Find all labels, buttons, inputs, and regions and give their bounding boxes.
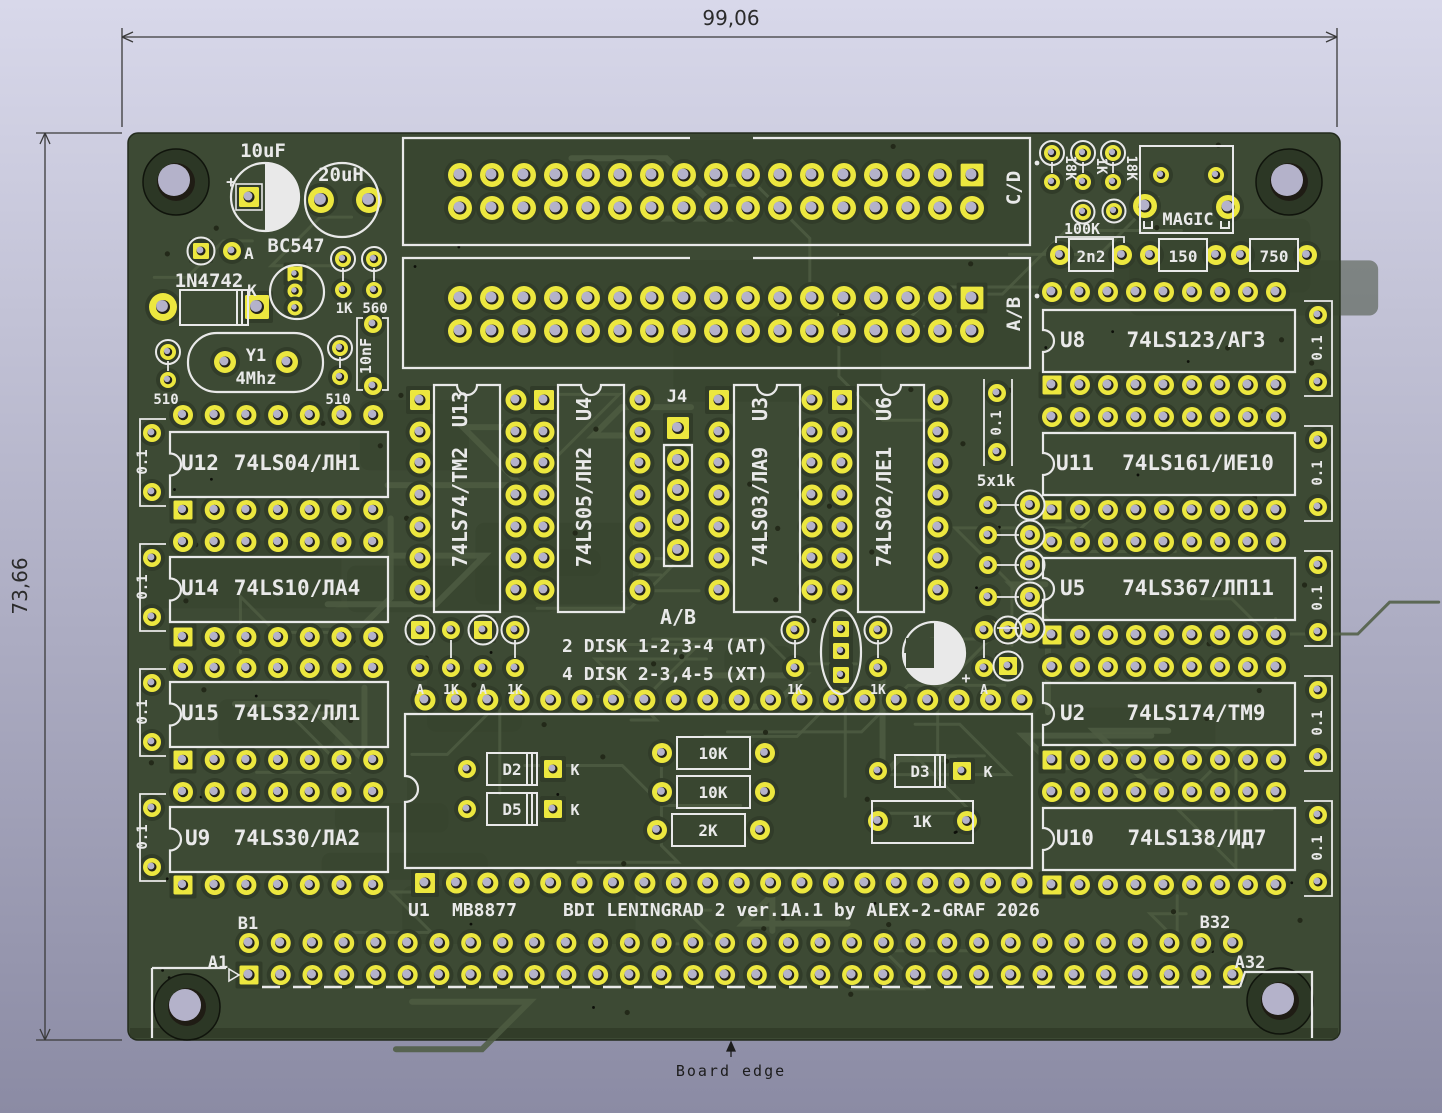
pad-hole — [511, 553, 520, 562]
pad-hole — [156, 300, 168, 312]
pad-hole — [463, 805, 470, 812]
pad-hole — [720, 938, 729, 947]
label-a-j1: A — [416, 683, 424, 698]
pad-hole — [774, 202, 785, 213]
pad-hole — [1215, 287, 1224, 296]
pad-hole — [241, 755, 249, 763]
pad-hole — [1131, 537, 1140, 546]
pad-hole — [954, 695, 963, 704]
pad-hole — [451, 878, 460, 887]
pad-hole — [582, 325, 593, 336]
pad-hole — [210, 663, 218, 671]
pad-hole — [797, 878, 806, 887]
pad-hole — [962, 816, 970, 824]
pad-hole — [678, 202, 689, 213]
pad-hole — [774, 325, 785, 336]
pad-hole — [710, 325, 721, 336]
board-title: BDI LENINGRAD 2 ver.1A.1 by ALEX-2-GRAF … — [563, 900, 1040, 921]
pad-hole — [305, 663, 313, 671]
pad-hole — [514, 878, 523, 887]
pad-hole — [593, 938, 602, 947]
pad-hole — [1215, 505, 1224, 514]
label-1k-vert: 1K — [1093, 158, 1109, 175]
pad-hole — [305, 880, 313, 888]
dim-width-label: 99,06 — [702, 6, 759, 30]
via — [811, 618, 816, 623]
via — [1154, 225, 1159, 230]
label-k-d2: K — [570, 761, 579, 779]
pad-hole — [250, 300, 262, 312]
pcb-render-canvas: 99,06 73,66 Board edge 10uF + 20uH BC547… — [0, 0, 1442, 1113]
pad-hole — [539, 553, 548, 562]
pad-hole — [934, 325, 945, 336]
pad-hole — [847, 970, 856, 979]
pad-hole — [837, 585, 846, 594]
pad-hole — [870, 292, 881, 303]
label-100k: 100K — [1064, 220, 1100, 238]
pad-hole — [1187, 880, 1196, 889]
pad-hole — [671, 878, 680, 887]
label-cap01-l1: 0.1 — [135, 449, 151, 474]
pad-hole — [582, 292, 593, 303]
pad-hole — [1159, 287, 1168, 296]
pad-hole — [416, 626, 423, 633]
label-a32: A32 — [1235, 953, 1266, 973]
pad-hole — [1314, 436, 1321, 443]
pad-hole — [210, 787, 218, 795]
pad-hole — [336, 344, 342, 350]
pad-hole — [656, 938, 665, 947]
pad-hole — [646, 202, 657, 213]
label-1k-j3: 1K — [787, 683, 803, 698]
label-5x1k: 5x1k — [977, 471, 1016, 490]
pad-hole — [966, 325, 977, 336]
drill-mark — [161, 969, 164, 972]
pad-hole — [1236, 250, 1244, 258]
pad-hole — [178, 505, 186, 513]
via — [542, 722, 547, 727]
pad-hole — [486, 292, 497, 303]
pad-hole — [1100, 938, 1109, 947]
pad-hole — [1075, 287, 1084, 296]
pad-hole — [511, 395, 520, 404]
pad-hole — [178, 663, 186, 671]
pad-hole — [807, 395, 816, 404]
pad-hole — [539, 585, 548, 594]
pad-hole — [244, 938, 253, 947]
pad-hole — [815, 938, 824, 947]
pad-hole — [891, 878, 900, 887]
label-a-j3: A — [980, 683, 988, 698]
pad-hole — [1314, 311, 1321, 318]
pad-hole — [402, 938, 411, 947]
label-a1: A1 — [208, 953, 228, 973]
drill-mark — [210, 478, 213, 481]
pad-hole — [902, 325, 913, 336]
pad-hole — [742, 292, 753, 303]
via — [775, 526, 780, 531]
label-2n2: 2n2 — [1077, 247, 1106, 266]
pad-hole — [791, 626, 798, 633]
pad-hole — [922, 695, 931, 704]
pad-hole — [783, 938, 792, 947]
pad-hole — [958, 767, 965, 774]
label-10uf: 10uF — [240, 140, 286, 162]
pad-hole — [1187, 505, 1196, 514]
via — [968, 261, 973, 266]
pad-hole — [714, 553, 723, 562]
pad-hole — [370, 970, 379, 979]
pad-hole — [910, 938, 919, 947]
label-2k: 2K — [698, 821, 718, 840]
ic-u4-part: 74LS05/ЛН2 — [572, 447, 596, 567]
pad-hole — [847, 938, 856, 947]
pad-hole — [593, 970, 602, 979]
pad-hole — [635, 458, 644, 467]
pad-hole — [1243, 630, 1252, 639]
pad-hole — [1271, 380, 1280, 389]
label-1k-top: 1K — [336, 301, 353, 317]
pad-hole — [549, 805, 556, 812]
pad-hole — [806, 292, 817, 303]
pad-hole — [369, 320, 376, 327]
pad-hole — [1047, 662, 1056, 671]
pad-hole — [806, 169, 817, 180]
label-u1-ref: U1 — [408, 900, 430, 921]
label-cap01-l3: 0.1 — [135, 699, 151, 724]
pad-hole — [1215, 380, 1224, 389]
via — [471, 682, 476, 687]
ic-u12-ref: U12 — [181, 451, 219, 475]
pad-hole — [577, 695, 586, 704]
label-b32: B32 — [1200, 913, 1231, 933]
pad-hole — [678, 325, 689, 336]
pad-hole — [614, 325, 625, 336]
label-b1: B1 — [238, 914, 258, 934]
pad-hole — [370, 286, 376, 292]
ic-u11-part: 74LS161/ИЕ10 — [1122, 451, 1274, 475]
pad-hole — [1215, 630, 1224, 639]
via — [960, 441, 965, 446]
via — [1302, 582, 1307, 587]
pad-hole — [486, 325, 497, 336]
pad-hole — [336, 537, 344, 545]
pad-hole — [837, 671, 843, 677]
via — [1279, 337, 1284, 342]
pad-hole — [368, 787, 376, 795]
pad-hole — [1271, 505, 1280, 514]
pad-hole — [511, 522, 520, 531]
via — [625, 1010, 630, 1015]
pad-hole — [934, 292, 945, 303]
label-1n4742: 1N4742 — [175, 270, 244, 292]
pad-hole — [807, 490, 816, 499]
drill-mark — [255, 695, 258, 698]
pad-hole — [241, 505, 249, 513]
pad-hole — [148, 679, 155, 686]
label-d2: D2 — [502, 760, 521, 779]
ic-u2-part: 74LS174/ТМ9 — [1126, 701, 1265, 725]
pad-hole — [148, 738, 155, 745]
pad-hole — [678, 292, 689, 303]
label-a-j2: A — [479, 683, 487, 698]
pad-hole — [305, 505, 313, 513]
pad-hole — [210, 880, 218, 888]
label-cap01-r5: 0.1 — [1310, 835, 1326, 860]
pad-hole — [1164, 970, 1173, 979]
pad-hole — [1314, 378, 1321, 385]
pad-hole — [608, 878, 617, 887]
pad-hole — [646, 292, 657, 303]
pad-hole — [497, 970, 506, 979]
pad-hole — [635, 490, 644, 499]
pad-hole — [614, 292, 625, 303]
pad-hole — [1187, 755, 1196, 764]
pad-hole — [838, 325, 849, 336]
pad-hole — [305, 755, 313, 763]
pad-hole — [966, 169, 977, 180]
pad-hole — [1075, 880, 1084, 889]
pad-hole — [837, 625, 843, 631]
pad-hole — [837, 458, 846, 467]
pad-hole — [273, 880, 281, 888]
ic-u14-ref: U14 — [181, 576, 219, 600]
pad-hole — [635, 395, 644, 404]
label-cap01-r4: 0.1 — [1310, 710, 1326, 735]
pad-hole — [702, 695, 711, 704]
pad-hole — [1243, 537, 1252, 546]
pad-hole — [545, 695, 554, 704]
pad-hole — [582, 202, 593, 213]
pad-hole — [164, 376, 170, 382]
pad-hole — [688, 938, 697, 947]
pad-hole — [656, 970, 665, 979]
pad-hole — [550, 169, 561, 180]
pad-hole — [241, 880, 249, 888]
pad-hole — [1314, 561, 1321, 568]
pad-hole — [974, 938, 983, 947]
pad-hole — [148, 804, 155, 811]
pad-hole — [980, 664, 987, 671]
pad-hole — [1196, 938, 1205, 947]
pad-hole — [539, 458, 548, 467]
pad-hole — [902, 169, 913, 180]
jumper-line-xt: 4 DISK 2-3,4-5 (XT) — [562, 664, 768, 685]
pad-hole — [878, 970, 887, 979]
pad-hole — [1187, 537, 1196, 546]
via — [908, 387, 913, 392]
ic-u13-part: 74LS74/ТМ2 — [448, 447, 472, 567]
pad-hole — [838, 169, 849, 180]
pad-hole — [1215, 537, 1224, 546]
pad-hole — [1005, 970, 1014, 979]
pad-hole — [241, 632, 249, 640]
ic-u8-ref: U8 — [1060, 328, 1085, 352]
pad-hole — [273, 663, 281, 671]
pad-hole — [815, 970, 824, 979]
pad-hole — [305, 787, 313, 795]
pad-hole — [1271, 755, 1280, 764]
pad-hole — [305, 410, 313, 418]
drill-mark — [954, 831, 957, 834]
pad-hole — [774, 169, 785, 180]
pad-hole — [336, 755, 344, 763]
silk-dot — [1035, 161, 1040, 166]
pad-hole — [1314, 878, 1321, 885]
pad-hole — [966, 202, 977, 213]
pad-hole — [755, 825, 763, 833]
pad-hole — [1157, 171, 1163, 177]
pad-hole — [1075, 505, 1084, 514]
label-cap01-l2: 0.1 — [135, 574, 151, 599]
pad-hole — [891, 695, 900, 704]
pad-hole — [1047, 537, 1056, 546]
mounting-hole-drill — [169, 989, 201, 1021]
pad-hole — [1159, 537, 1168, 546]
pad-hole — [1103, 787, 1112, 796]
pad-hole — [635, 427, 644, 436]
pad-hole — [1159, 787, 1168, 796]
pad-hole — [710, 292, 721, 303]
pad-hole — [1047, 630, 1056, 639]
pad-hole — [1048, 178, 1054, 184]
pad-hole — [1211, 250, 1219, 258]
pad-hole — [1037, 938, 1046, 947]
pad-hole — [678, 169, 689, 180]
pad-hole — [702, 878, 711, 887]
pad-hole — [1025, 560, 1033, 568]
pad-hole — [561, 970, 570, 979]
label-anode-a: A — [244, 244, 254, 263]
drill-mark — [556, 793, 559, 796]
via — [1297, 918, 1302, 923]
pad-hole — [873, 816, 881, 824]
pad-hole — [539, 427, 548, 436]
pad-hole — [874, 626, 881, 633]
pad-hole — [434, 970, 443, 979]
pad-hole — [1314, 628, 1321, 635]
mounting-hole-drill — [158, 164, 190, 196]
pad-hole — [966, 292, 977, 303]
label-y1-ref: Y1 — [246, 346, 266, 366]
pad-hole — [765, 695, 774, 704]
pad-hole — [1017, 695, 1026, 704]
pad-hole — [545, 878, 554, 887]
pad-hole — [1159, 412, 1168, 421]
pad-hole — [1187, 787, 1196, 796]
pad-hole — [1069, 970, 1078, 979]
pad-hole — [518, 169, 529, 180]
pad-hole — [837, 647, 843, 653]
pad-hole — [984, 501, 991, 508]
via — [149, 760, 154, 765]
label-k-d5: K — [570, 801, 579, 819]
pad-hole — [1159, 380, 1168, 389]
pad-hole — [1025, 530, 1033, 538]
pad-hole — [529, 938, 538, 947]
pad-hole — [807, 427, 816, 436]
pad-hole — [878, 938, 887, 947]
pcb-render: 99,06 73,66 Board edge 10uF + 20uH BC547… — [0, 0, 1442, 1113]
pad-hole — [635, 585, 644, 594]
pad-hole — [657, 748, 665, 756]
pad-hole — [1075, 662, 1084, 671]
pad-hole — [1314, 686, 1321, 693]
pad-hole — [1196, 970, 1205, 979]
pad-hole — [714, 458, 723, 467]
pad-hole — [415, 553, 424, 562]
pad-hole — [178, 755, 186, 763]
pad-hole — [539, 522, 548, 531]
label-18k-2: 18K — [1123, 155, 1139, 181]
pad-hole — [1215, 787, 1224, 796]
pad-hole — [511, 626, 518, 633]
label-10k-1: 10K — [699, 744, 728, 763]
pad-hole — [466, 970, 475, 979]
pad-hole — [511, 664, 518, 671]
pad-hole — [1227, 938, 1236, 947]
pad-hole — [550, 202, 561, 213]
pad-hole — [314, 193, 326, 205]
pad-hole — [518, 202, 529, 213]
via — [886, 922, 891, 927]
drill-mark — [470, 923, 473, 926]
mounting-hole-drill — [1271, 164, 1303, 196]
label-cap01-r1: 0.1 — [1310, 335, 1326, 360]
pad-hole — [447, 664, 454, 671]
pad-hole — [1017, 878, 1026, 887]
pad-hole — [539, 395, 548, 404]
pad-hole — [1103, 880, 1112, 889]
pad-hole — [415, 395, 424, 404]
pad-hole — [934, 169, 945, 180]
ic-u3-ref: U3 — [748, 397, 772, 421]
pad-hole — [148, 488, 155, 495]
pad-hole — [933, 522, 942, 531]
label-1k-j4: 1K — [870, 683, 886, 698]
pad-hole — [454, 169, 465, 180]
pad-hole — [635, 522, 644, 531]
pad-hole — [370, 938, 379, 947]
pad-hole — [241, 410, 249, 418]
pad-hole — [273, 632, 281, 640]
pad-hole — [1075, 380, 1084, 389]
pad-hole — [1314, 753, 1321, 760]
pad-hole — [1314, 811, 1321, 818]
drill-mark — [490, 651, 493, 654]
ic-u14-part: 74LS10/ЛА4 — [234, 576, 360, 600]
pad-hole — [511, 585, 520, 594]
pad-hole — [1243, 787, 1252, 796]
ic-u9-ref: U9 — [185, 826, 210, 850]
ic-u2-ref: U2 — [1060, 701, 1085, 725]
ic-u4-ref: U4 — [572, 397, 596, 421]
pad-hole — [244, 192, 253, 201]
pad-hole — [1103, 505, 1112, 514]
via — [165, 251, 170, 256]
pad-hole — [807, 522, 816, 531]
pad-hole — [1103, 537, 1112, 546]
pad-hole — [1131, 755, 1140, 764]
pad-hole — [933, 395, 942, 404]
pad-hole — [210, 537, 218, 545]
pad-hole — [273, 505, 281, 513]
pad-hole — [720, 970, 729, 979]
pad-hole — [870, 202, 881, 213]
ic-u8-part: 74LS123/АГ3 — [1126, 328, 1265, 352]
pad-hole — [228, 247, 235, 254]
pad-hole — [148, 429, 155, 436]
